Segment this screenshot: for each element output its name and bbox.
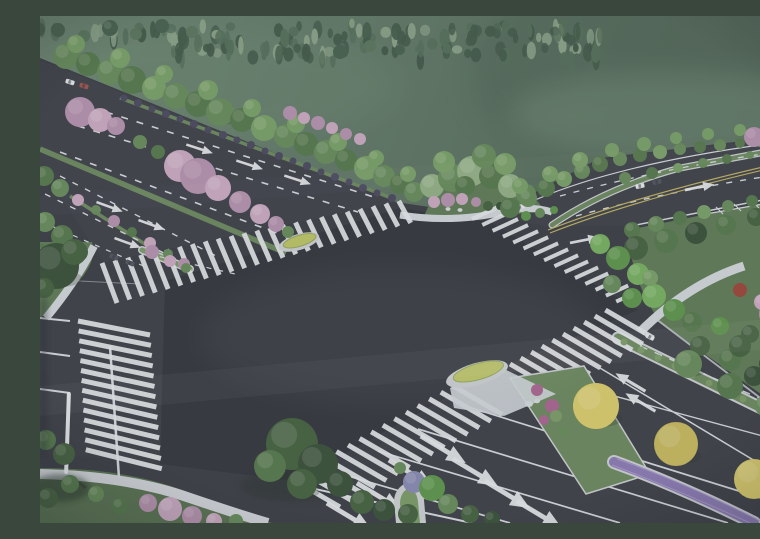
photo-effects — [40, 16, 760, 523]
photo-vignette — [40, 16, 760, 523]
rendering-canvas — [40, 16, 760, 523]
intersection-rendering-photo — [40, 16, 760, 523]
